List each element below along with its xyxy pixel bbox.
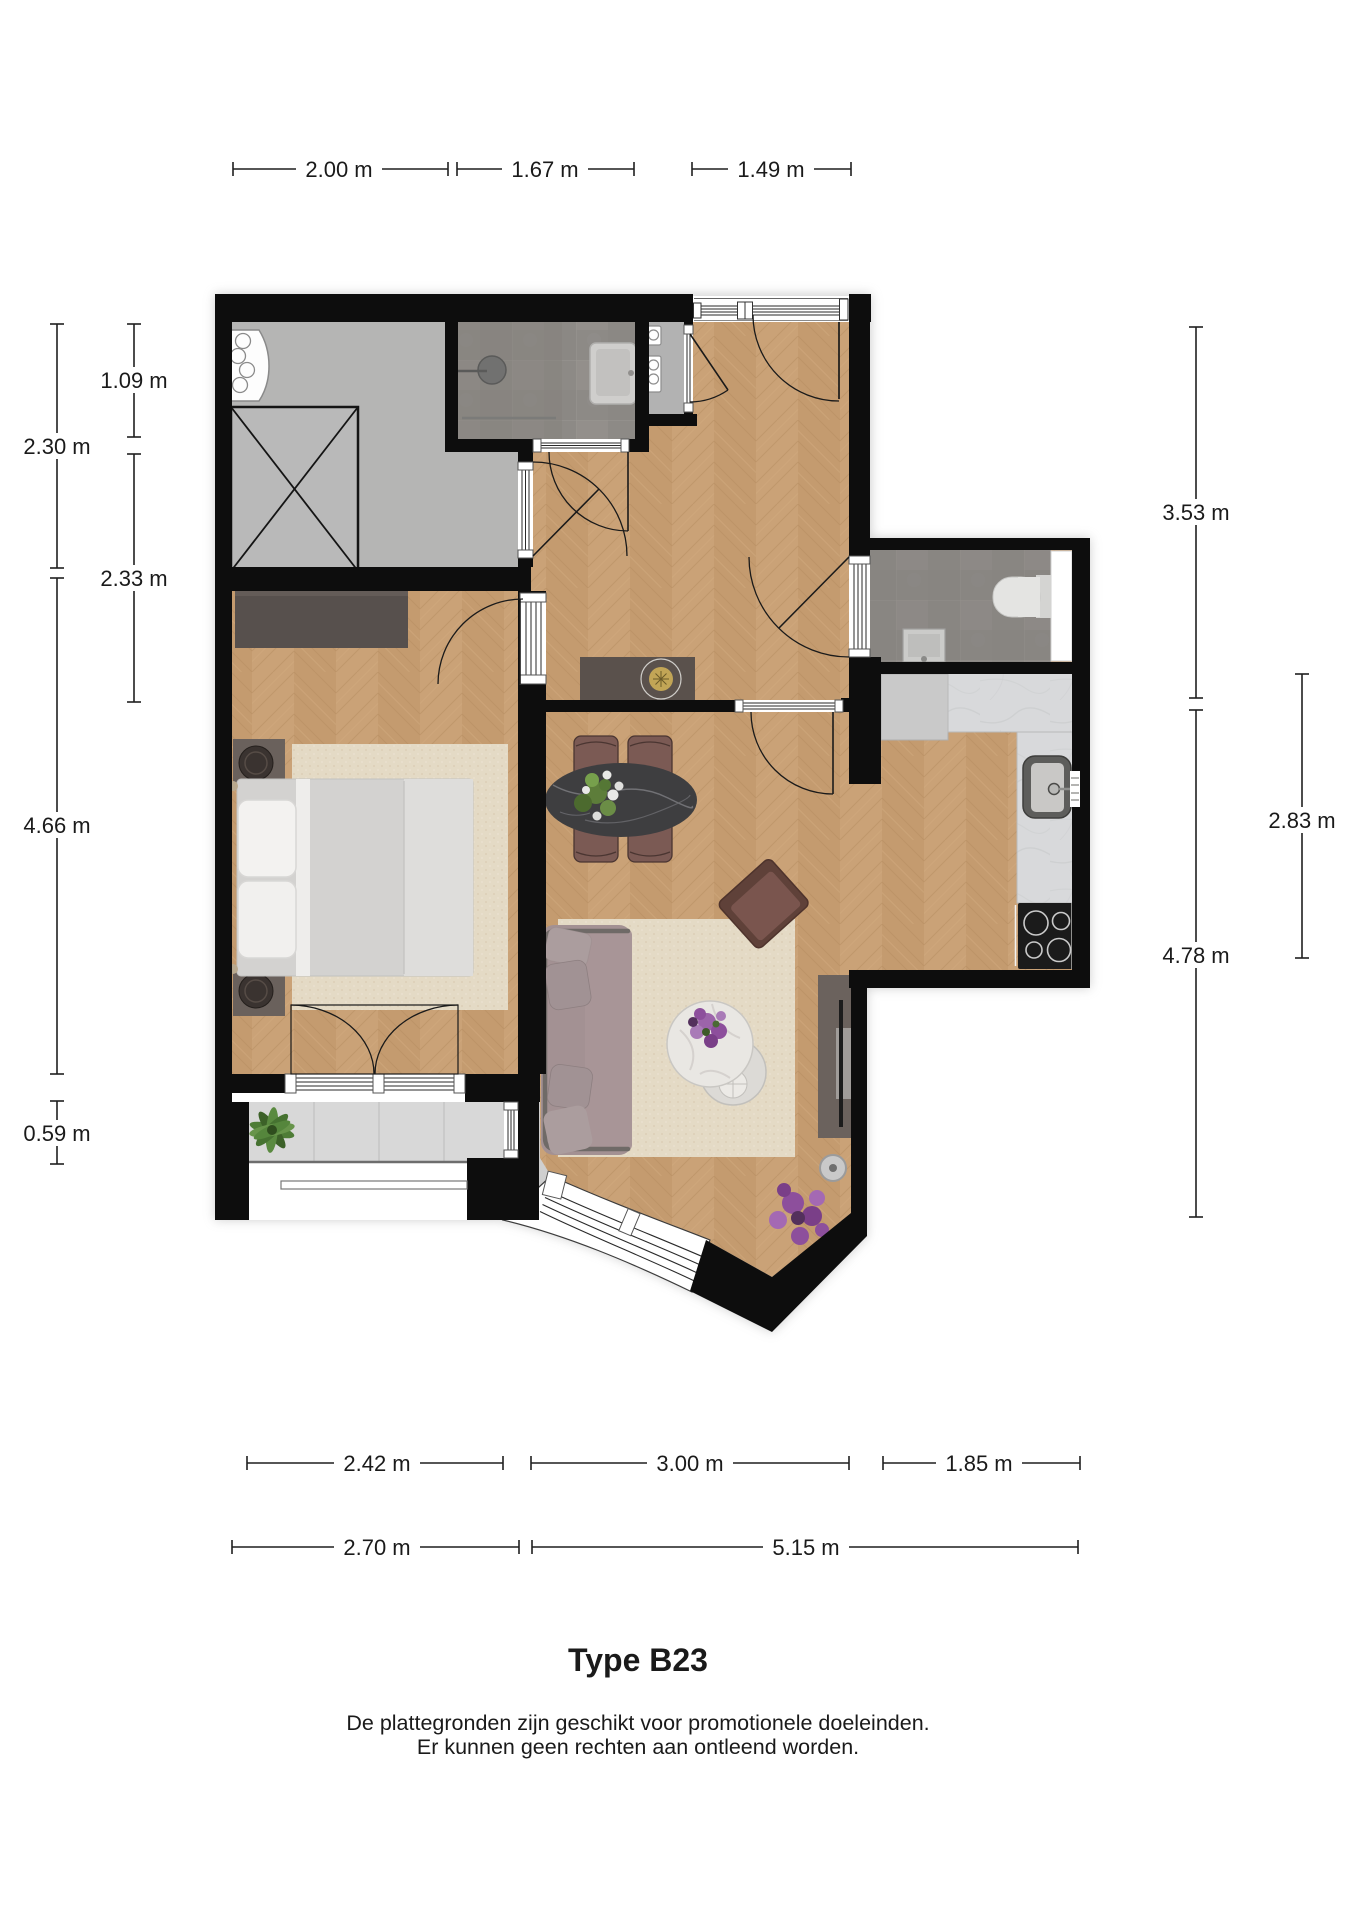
svg-text:4.66 m: 4.66 m [23,813,90,838]
svg-text:1.09 m: 1.09 m [100,368,167,393]
svg-text:De plattegronden zijn geschikt: De plattegronden zijn geschikt voor prom… [346,1711,929,1735]
svg-text:2.30 m: 2.30 m [23,434,90,459]
svg-text:2.42 m: 2.42 m [343,1451,410,1476]
svg-text:2.70 m: 2.70 m [343,1535,410,1560]
svg-text:4.78 m: 4.78 m [1162,943,1229,968]
svg-text:2.83 m: 2.83 m [1268,808,1335,833]
svg-text:3.53 m: 3.53 m [1162,500,1229,525]
svg-text:3.00 m: 3.00 m [656,1451,723,1476]
svg-text:2.33 m: 2.33 m [100,566,167,591]
svg-text:1.49 m: 1.49 m [737,157,804,182]
svg-text:5.15 m: 5.15 m [772,1535,839,1560]
svg-text:0.59 m: 0.59 m [23,1121,90,1146]
svg-text:2.00 m: 2.00 m [305,157,372,182]
svg-text:Er kunnen geen rechten aan ont: Er kunnen geen rechten aan ontleend word… [417,1735,859,1759]
svg-text:1.85 m: 1.85 m [945,1451,1012,1476]
svg-text:1.67 m: 1.67 m [511,157,578,182]
svg-text:Type B23: Type B23 [568,1642,708,1678]
